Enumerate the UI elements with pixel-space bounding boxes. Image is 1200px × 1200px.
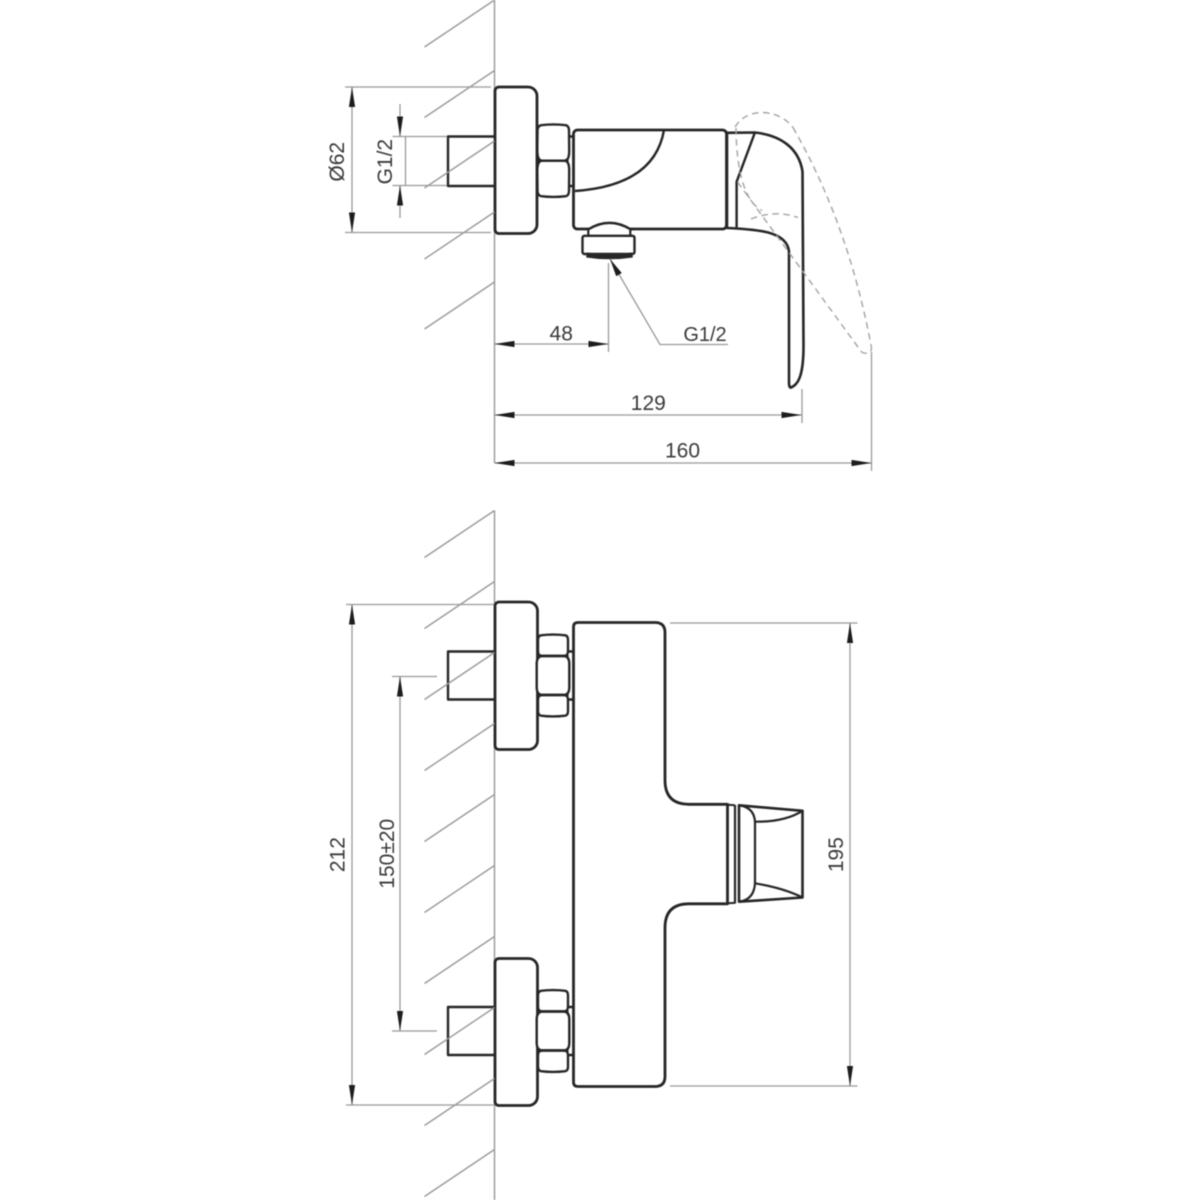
svg-text:G1/2: G1/2 <box>374 139 397 185</box>
svg-text:129: 129 <box>631 392 666 415</box>
svg-text:160: 160 <box>665 440 700 463</box>
svg-text:150±20: 150±20 <box>376 819 399 889</box>
svg-text:195: 195 <box>825 837 848 872</box>
svg-text:48: 48 <box>550 322 573 345</box>
svg-text:212: 212 <box>327 837 350 872</box>
svg-text:Ø62: Ø62 <box>326 142 349 182</box>
svg-text:G1/2: G1/2 <box>683 324 726 346</box>
